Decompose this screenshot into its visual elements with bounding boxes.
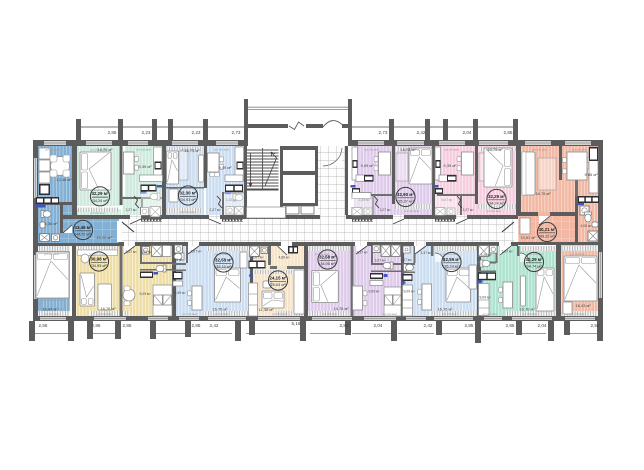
svg-text:32,29 м²: 32,29 м² <box>526 257 543 262</box>
svg-text:2,85: 2,85 <box>123 323 132 328</box>
svg-text:укл.обл.вент.: укл.обл.вент. <box>382 312 398 316</box>
svg-text:3,37 м²: 3,37 м² <box>420 251 432 255</box>
svg-text:9,09 м²: 9,09 м² <box>479 296 491 300</box>
svg-text:32,29 м²: 32,29 м² <box>92 191 109 196</box>
svg-text:16,76 м²: 16,76 м² <box>100 306 116 311</box>
svg-text:32,90 м²: 32,90 м² <box>397 192 414 197</box>
svg-text:24,15 м²: 24,15 м² <box>270 275 287 280</box>
svg-text:4,06 м²: 4,06 м² <box>580 224 592 228</box>
svg-text:16,76 м²: 16,76 м² <box>212 307 228 312</box>
svg-text:9,09 м²: 9,09 м² <box>361 163 375 168</box>
svg-text:12,46 м²: 12,46 м² <box>56 177 72 182</box>
svg-text:16,43 м²: 16,43 м² <box>575 303 591 308</box>
svg-text:3,37 м²: 3,37 м² <box>501 250 513 254</box>
svg-text:(34,74 м²): (34,74 м²) <box>526 265 544 269</box>
svg-text:9,85 м²: 9,85 м² <box>585 172 599 177</box>
svg-text:5,07 м²: 5,07 м² <box>252 256 264 260</box>
svg-text:укл.обл.вент.: укл.обл.вент. <box>44 252 60 256</box>
svg-text:2,42: 2,42 <box>417 130 426 135</box>
svg-text:укл.обл.вент.: укл.обл.вент. <box>404 147 420 151</box>
svg-text:2,85: 2,85 <box>465 323 474 328</box>
svg-text:43,46 м²: 43,46 м² <box>75 225 92 230</box>
svg-text:2,55: 2,55 <box>591 323 600 328</box>
svg-text:(43,12 м²): (43,12 м²) <box>539 235 557 239</box>
svg-text:2,23: 2,23 <box>192 130 201 135</box>
svg-text:2,27 м²: 2,27 м² <box>379 208 391 212</box>
svg-text:укл.обл.вент.: укл.обл.вент. <box>572 147 588 151</box>
svg-text:2,55: 2,55 <box>39 323 48 328</box>
svg-text:2,85: 2,85 <box>192 323 201 328</box>
svg-text:(35,37 м²): (35,37 м²) <box>397 200 415 204</box>
svg-text:укл.обл.вент.: укл.обл.вент. <box>136 147 152 151</box>
svg-text:укл.обл.вент.: укл.обл.вент. <box>214 147 230 151</box>
svg-text:(34,34 м²): (34,34 м²) <box>92 199 110 203</box>
svg-text:4,86 м²: 4,86 м² <box>278 256 290 260</box>
svg-text:16,75 м²: 16,75 м² <box>535 191 551 196</box>
svg-text:14,76 м²: 14,76 м² <box>333 306 349 311</box>
svg-text:укл.обл.вент.: укл.обл.вент. <box>532 147 548 151</box>
svg-text:3,07 м²: 3,07 м² <box>374 259 386 263</box>
svg-text:(34,95 м²): (34,95 м²) <box>319 262 337 266</box>
svg-text:(34,74 м²): (34,74 м²) <box>488 202 506 206</box>
svg-text:11,38 м²: 11,38 м² <box>259 307 275 312</box>
svg-text:укл.обл.вент.: укл.обл.вент. <box>404 209 420 213</box>
svg-text:40,21 м²: 40,21 м² <box>539 227 556 232</box>
svg-text:2,73: 2,73 <box>232 130 241 135</box>
svg-text:10,20 м²: 10,20 м² <box>96 235 112 240</box>
svg-text:укл.обл.вент.: укл.обл.вент. <box>364 147 380 151</box>
svg-text:2,42: 2,42 <box>424 323 433 328</box>
svg-text:2,27 м²: 2,27 м² <box>209 208 221 212</box>
svg-text:(44,72 м²): (44,72 м²) <box>75 233 93 237</box>
svg-text:2,04: 2,04 <box>463 130 472 135</box>
svg-text:(35,16 м²): (35,16 м²) <box>215 265 233 269</box>
svg-text:9,39 м²: 9,39 м² <box>174 291 186 295</box>
svg-text:укл.обл.вент.: укл.обл.вент. <box>180 147 196 151</box>
svg-text:5,16: 5,16 <box>292 321 301 326</box>
svg-text:30,98 м²: 30,98 м² <box>91 256 108 261</box>
svg-text:2,73: 2,73 <box>379 130 388 135</box>
svg-text:укл.обл.вент.: укл.обл.вент. <box>182 312 198 316</box>
svg-text:32,58 м²: 32,58 м² <box>215 257 232 262</box>
svg-text:2,04: 2,04 <box>538 323 547 328</box>
svg-text:3,07 м²: 3,07 м² <box>125 250 137 254</box>
svg-text:16,76 м²: 16,76 м² <box>437 307 453 312</box>
svg-text:32,29 м²: 32,29 м² <box>488 194 505 199</box>
svg-text:укл.обл.вент.: укл.обл.вент. <box>45 147 61 151</box>
svg-text:3,28 м²: 3,28 м² <box>171 258 183 262</box>
svg-text:укл.обл.вент.: укл.обл.вент. <box>486 147 502 151</box>
svg-text:укл.обл.вент.: укл.обл.вент. <box>522 312 538 316</box>
svg-text:9,09 м²: 9,09 м² <box>219 165 233 170</box>
svg-text:9,39 м²: 9,39 м² <box>139 164 153 169</box>
svg-text:(35,74 м²): (35,74 м²) <box>443 265 461 269</box>
svg-text:укл.обл.вент.: укл.обл.вент. <box>442 312 458 316</box>
svg-text:16,76 м²: 16,76 м² <box>519 307 535 312</box>
svg-text:2,27 м²: 2,27 м² <box>462 208 474 212</box>
svg-text:2,23: 2,23 <box>142 130 151 135</box>
svg-text:9,09 м²: 9,09 м² <box>368 290 380 294</box>
svg-text:9,39 м²: 9,39 м² <box>444 163 458 168</box>
svg-text:3,07 м²: 3,07 м² <box>400 258 412 262</box>
svg-text:2,85: 2,85 <box>108 130 117 135</box>
svg-text:укл.обл.вент.: укл.обл.вент. <box>272 312 288 316</box>
svg-text:32,59 м²: 32,59 м² <box>443 257 460 262</box>
svg-text:16,43 м²: 16,43 м² <box>42 307 58 312</box>
svg-text:2,42: 2,42 <box>210 323 219 328</box>
svg-text:укл.обл.вент.: укл.обл.вент. <box>214 312 230 316</box>
svg-text:9,09 м²: 9,09 м² <box>139 292 151 296</box>
svg-text:укл.обл.вент.: укл.обл.вент. <box>444 147 460 151</box>
svg-text:укл.обл.вент.: укл.обл.вент. <box>44 312 60 316</box>
svg-text:укл.обл.вент.: укл.обл.вент. <box>486 209 502 213</box>
svg-text:укл.обл.вент.: укл.обл.вент. <box>97 312 113 316</box>
svg-text:2,86: 2,86 <box>92 323 101 328</box>
svg-text:3,28 м²: 3,28 м² <box>140 250 152 254</box>
svg-text:укл.обл.вент.: укл.обл.вент. <box>482 312 498 316</box>
svg-text:3,28 м²: 3,28 м² <box>480 253 492 257</box>
svg-text:2,85: 2,85 <box>504 130 513 135</box>
svg-text:2,85: 2,85 <box>506 323 515 328</box>
svg-text:32,58 м²: 32,58 м² <box>319 254 336 259</box>
svg-text:3,37 м²: 3,37 м² <box>356 251 368 255</box>
svg-text:укл.обл.вент.: укл.обл.вент. <box>570 312 586 316</box>
svg-text:(25,63 м²): (25,63 м²) <box>270 283 288 287</box>
svg-text:укл.обл.вент.: укл.обл.вент. <box>90 211 106 215</box>
svg-text:3,07 м²: 3,07 м² <box>190 250 202 254</box>
svg-text:укл.обл.вент.: укл.обл.вент. <box>90 147 106 151</box>
svg-text:(34,95 м²): (34,95 м²) <box>91 264 109 268</box>
svg-text:укл.обл.вент.: укл.обл.вент. <box>180 210 196 214</box>
svg-text:2,85: 2,85 <box>340 323 349 328</box>
svg-text:2,04: 2,04 <box>374 323 383 328</box>
svg-text:10,81 м²: 10,81 м² <box>520 235 536 240</box>
svg-text:укл.обл.вент.: укл.обл.вент. <box>322 312 338 316</box>
svg-text:(34,93 м²): (34,93 м²) <box>180 198 198 202</box>
svg-text:2,27 м²: 2,27 м² <box>125 208 137 212</box>
svg-text:9,09 м²: 9,09 м² <box>403 290 415 294</box>
svg-text:укл.обл.вент.: укл.обл.вент. <box>570 252 586 256</box>
svg-text:32,30 м²: 32,30 м² <box>180 190 197 195</box>
svg-text:4,36 м²: 4,36 м² <box>45 221 59 226</box>
